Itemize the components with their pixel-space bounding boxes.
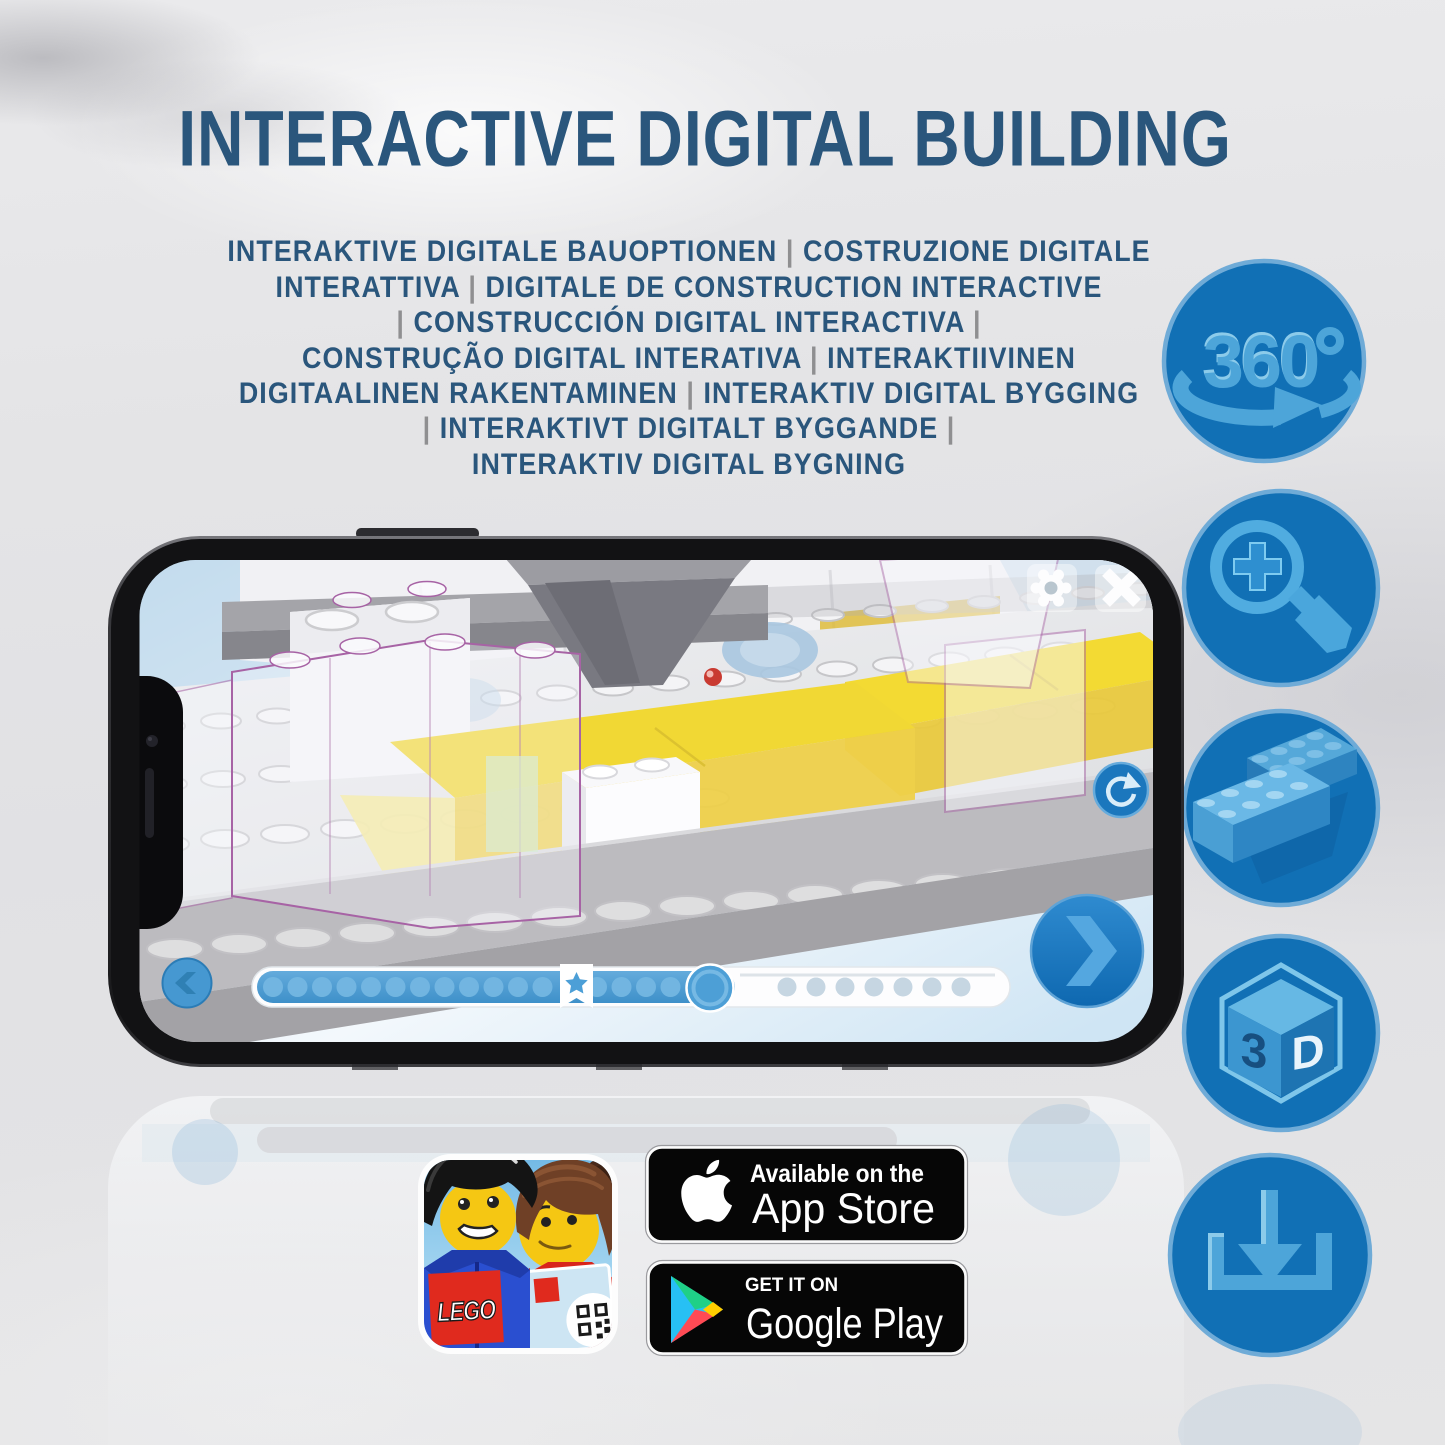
- svg-text:Google Play: Google Play: [746, 1300, 943, 1348]
- svg-text:GET IT ON: GET IT ON: [745, 1275, 838, 1296]
- svg-text:360: 360: [1203, 320, 1318, 403]
- svg-text:App Store: App Store: [752, 1185, 935, 1233]
- svg-text:LEGO: LEGO: [436, 1294, 496, 1327]
- svg-text:3: 3: [1241, 1022, 1268, 1080]
- svg-text:D: D: [1291, 1023, 1324, 1080]
- svg-text:Available on the: Available on the: [750, 1160, 924, 1188]
